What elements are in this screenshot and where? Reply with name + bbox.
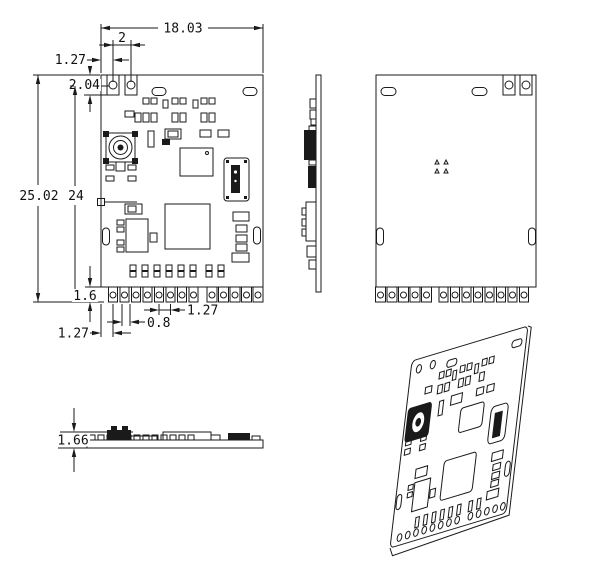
iso-debug-connector [487, 402, 509, 445]
technical-drawing: 18.03 2 1.27 2.04 [0, 0, 606, 571]
front-view [98, 75, 264, 302]
dim-hole-pitch: 2 [99, 31, 145, 47]
isometric-view [389, 325, 532, 557]
svg-text:2.04: 2.04 [69, 78, 100, 93]
rf-ic [180, 148, 213, 176]
passive-components [106, 98, 249, 262]
svg-text:1.27: 1.27 [187, 304, 218, 319]
bottom-pad-row [130, 265, 224, 277]
main-ic [165, 204, 210, 249]
mounting-tab-right [520, 75, 532, 95]
iso-ufl-connector [405, 402, 432, 443]
side-slot [377, 228, 384, 245]
mounting-slot [381, 88, 396, 96]
mounting-tab-left [503, 75, 515, 95]
svg-text:1.27: 1.27 [55, 53, 86, 68]
debug-connector [224, 158, 249, 201]
castellated-pins [109, 287, 264, 302]
side-slot [254, 227, 261, 244]
iso-secondary-ic [411, 478, 430, 512]
iso-rf-ic [458, 401, 484, 433]
back-board-outline [376, 75, 536, 287]
side-components [302, 99, 316, 269]
svg-text:24: 24 [68, 189, 84, 204]
dim-tab-depth: 2.04 [69, 66, 101, 112]
profile-view: 1.66 [56, 408, 263, 472]
svg-text:18.03: 18.03 [163, 22, 202, 37]
dim-castellation-height: 1.6 [72, 266, 98, 322]
svg-text:1.6: 1.6 [73, 289, 96, 304]
side-ufl-connector [304, 130, 316, 160]
dim-pad-width: 0.8 [107, 316, 170, 331]
mounting-slot [243, 88, 257, 96]
secondary-ic [126, 219, 148, 252]
side-view [302, 75, 321, 292]
isometric-board [390, 326, 528, 548]
test-vias [435, 160, 448, 173]
castellated-pins [376, 287, 529, 302]
dim-pin-offset: 1.27 [58, 327, 131, 342]
svg-text:25.02: 25.02 [19, 189, 58, 204]
profile-components [107, 426, 260, 440]
back-view [376, 75, 537, 302]
dim-inner-height: 24 [66, 86, 85, 302]
iso-main-ic [440, 452, 477, 501]
svg-text:1.66: 1.66 [57, 434, 88, 449]
svg-text:2: 2 [118, 31, 126, 46]
mounting-slot [152, 88, 166, 96]
profile-board-outline [87, 440, 263, 448]
mounting-slot [472, 88, 487, 96]
side-board-outline [316, 75, 321, 292]
drawing-canvas: 18.03 2 1.27 2.04 [0, 0, 606, 571]
side-slot [103, 228, 110, 245]
svg-text:1.27: 1.27 [58, 327, 89, 342]
dim-overall-height: 25.02 [19, 75, 58, 302]
svg-text:0.8: 0.8 [147, 316, 170, 331]
side-slot [529, 228, 536, 245]
dim-hole-offset: 1.27 [55, 53, 129, 68]
